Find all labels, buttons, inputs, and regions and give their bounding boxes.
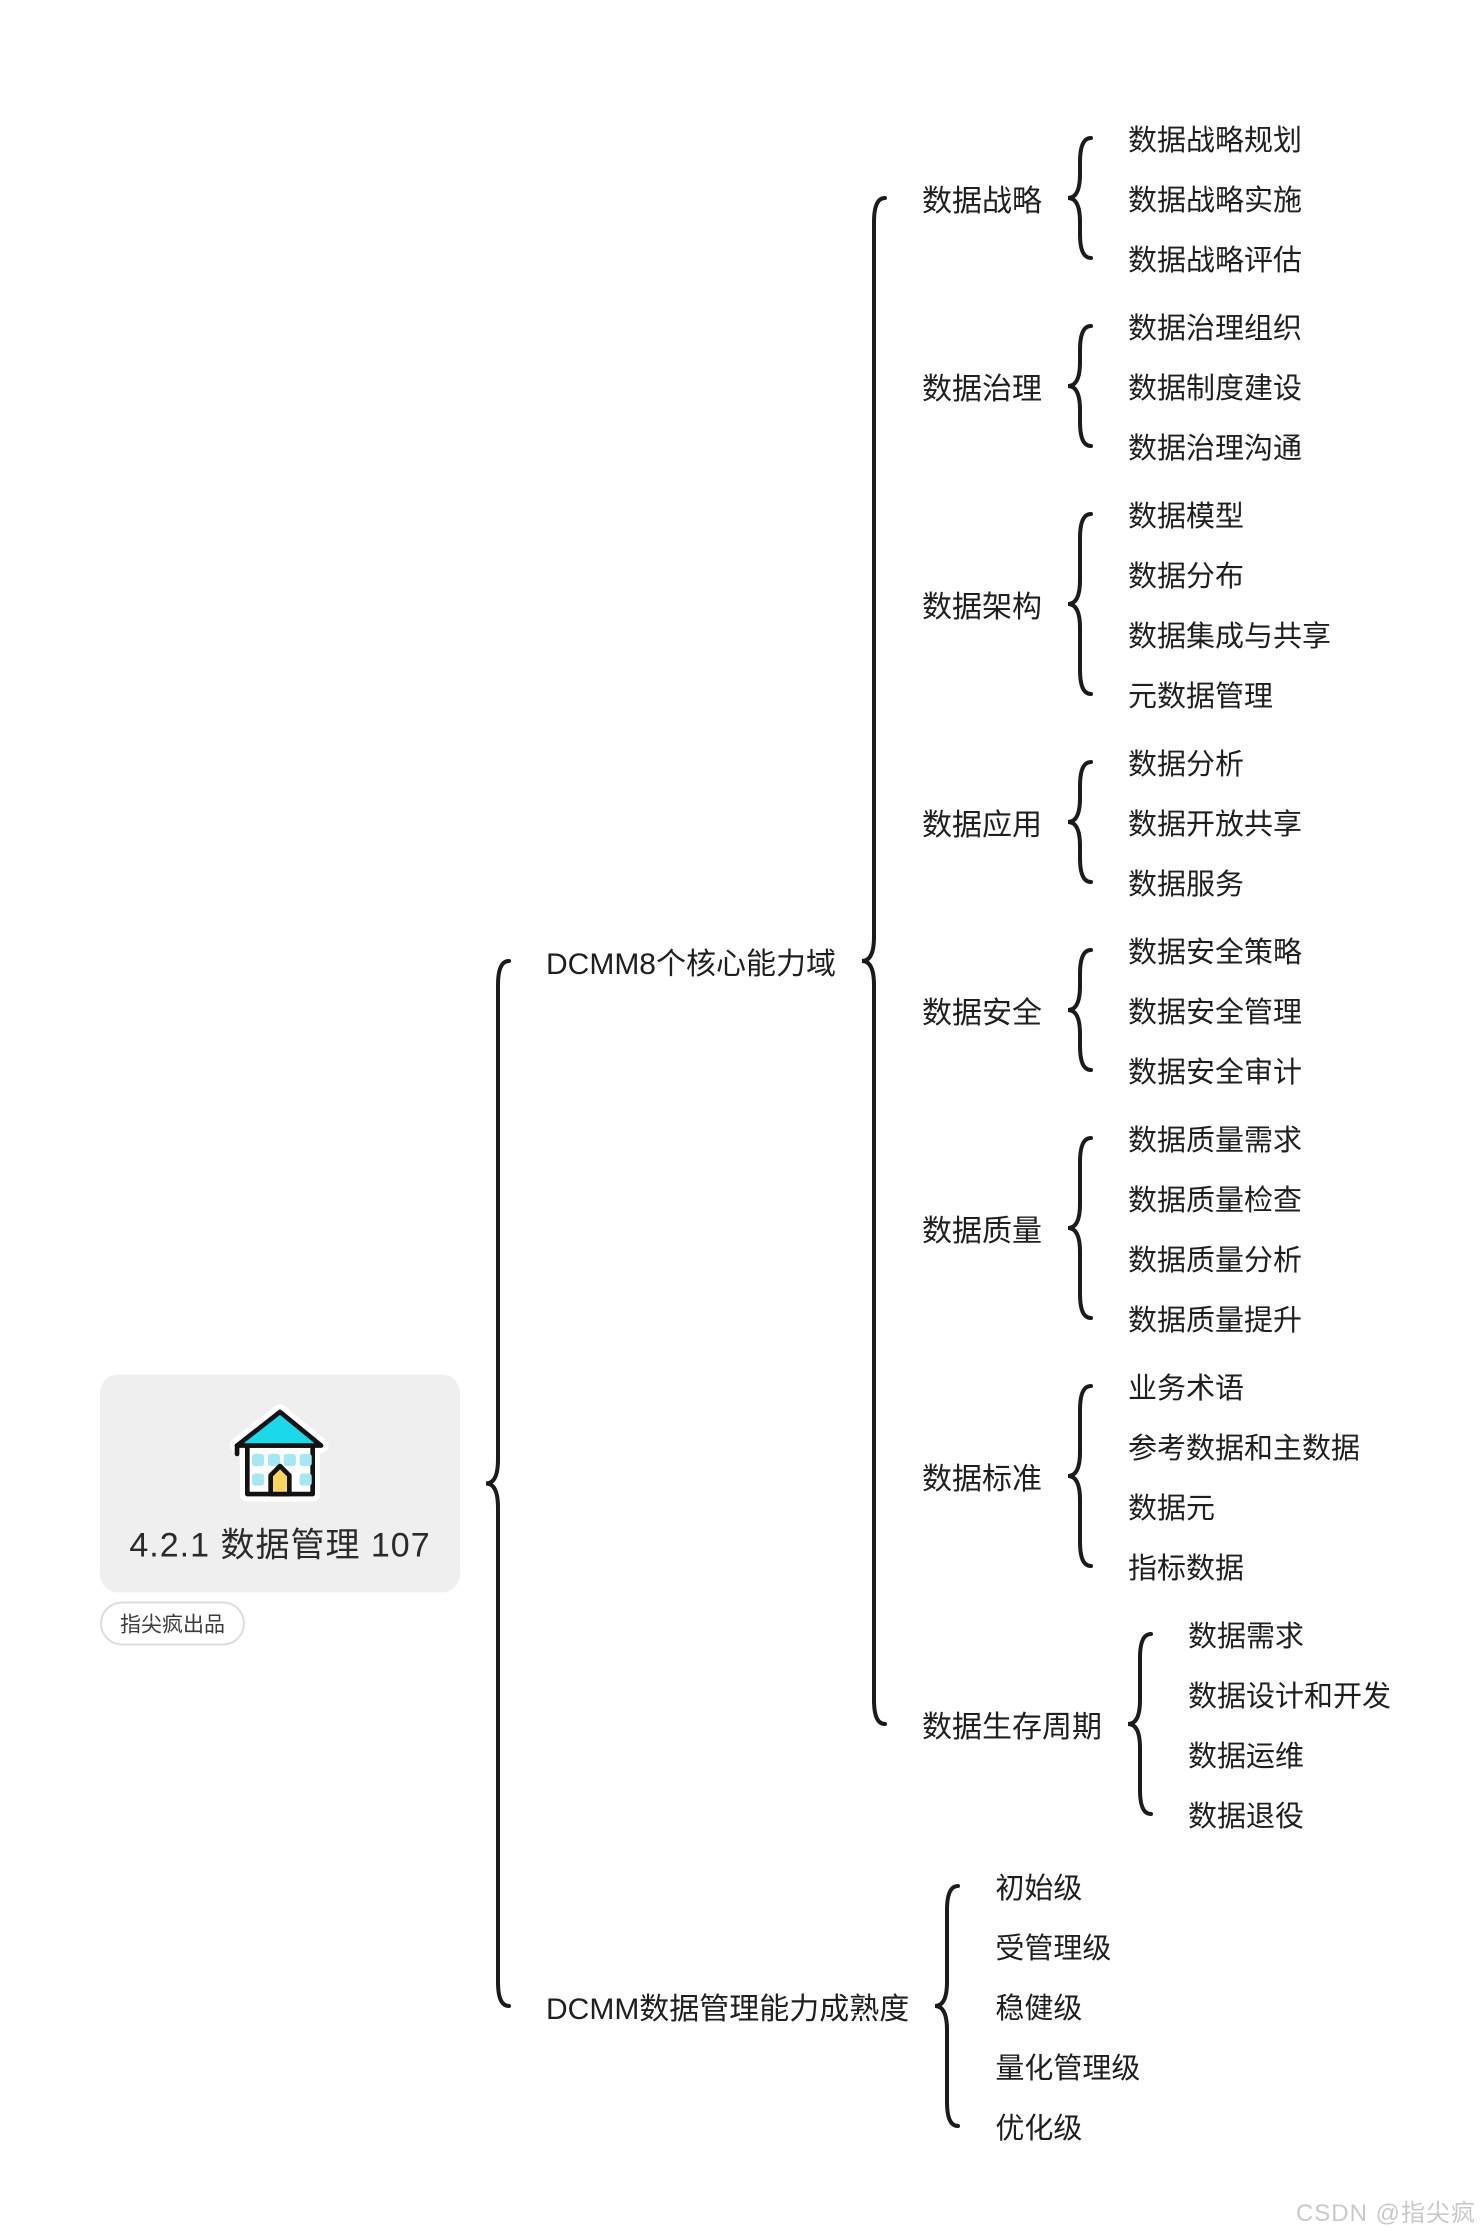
topic-label-wrap: DCMM数据管理能力成熟度 — [546, 1984, 909, 2028]
topic-label: 量化管理级 — [995, 2045, 1140, 2087]
topic-leaf: 数据服务 — [1128, 852, 1302, 912]
topic-leaf: 数据开放共享 — [1128, 792, 1302, 852]
brace-connector — [1126, 1604, 1152, 1844]
topic-children: 数据战略规划数据战略实施数据战略评估 — [1128, 108, 1302, 288]
topic-leaf: 数据需求 — [1188, 1604, 1391, 1664]
topic-children: 数据需求数据设计和开发数据运维数据退役 — [1188, 1604, 1391, 1844]
topic-label: 数据战略规划 — [1128, 117, 1302, 159]
topic-leaf: 业务术语 — [1128, 1356, 1360, 1416]
topic-label: 数据战略实施 — [1128, 177, 1302, 219]
topic-label: 数据运维 — [1188, 1733, 1304, 1775]
brace-connector — [1066, 1108, 1092, 1348]
brace-connector — [484, 100, 510, 2160]
topic-leaf: 初始级 — [995, 1856, 1140, 1916]
topic-label: 初始级 — [995, 1865, 1082, 1907]
topic-leaf: 数据战略实施 — [1128, 168, 1302, 228]
topic-branch: 数据生存周期数据需求数据设计和开发数据运维数据退役 — [922, 1604, 1391, 1844]
topic-label: 元数据管理 — [1128, 673, 1273, 715]
topic-label-wrap: 数据战略 — [922, 176, 1042, 220]
topic-label: DCMM数据管理能力成熟度 — [546, 1984, 909, 2028]
brace-connector — [1066, 1356, 1092, 1596]
house-window — [300, 1474, 312, 1486]
topic-branch: 数据治理数据治理组织数据制度建设数据治理沟通 — [922, 296, 1391, 476]
topic-leaf: 参考数据和主数据 — [1128, 1416, 1360, 1476]
topic-label: 数据质量 — [922, 1206, 1042, 1250]
topic-label: 数据开放共享 — [1128, 801, 1302, 843]
brace-connector — [1066, 296, 1092, 476]
topic-label: 业务术语 — [1128, 1365, 1244, 1407]
topic-branch: 数据安全数据安全策略数据安全管理数据安全审计 — [922, 920, 1391, 1100]
topic-label: 受管理级 — [995, 1925, 1111, 1967]
topic-label: 数据安全审计 — [1128, 1049, 1302, 1091]
house-window — [268, 1454, 280, 1466]
topic-label-wrap: 数据治理 — [922, 364, 1042, 408]
topic-leaf: 数据安全管理 — [1128, 980, 1302, 1040]
topic-label: 数据质量需求 — [1128, 1117, 1302, 1159]
topic-branch: 数据应用数据分析数据开放共享数据服务 — [922, 732, 1391, 912]
topic-children: 初始级受管理级稳健级量化管理级优化级 — [995, 1856, 1140, 2156]
topic-leaf: 数据战略评估 — [1128, 228, 1302, 288]
brace-connector — [1066, 732, 1092, 912]
topic-label: 数据设计和开发 — [1188, 1673, 1391, 1715]
house-window — [300, 1454, 312, 1466]
topic-label: 数据制度建设 — [1128, 365, 1302, 407]
topic-leaf: 数据制度建设 — [1128, 356, 1302, 416]
topic-label: 参考数据和主数据 — [1128, 1425, 1360, 1467]
topic-label: 数据治理沟通 — [1128, 425, 1302, 467]
topic-branch: 数据战略数据战略规划数据战略实施数据战略评估 — [922, 108, 1391, 288]
topic-children: 数据模型数据分布数据集成与共享元数据管理 — [1128, 484, 1331, 724]
csdn-watermark: CSDN @指尖疯 — [1296, 2193, 1476, 2228]
topic-label: 数据质量检查 — [1128, 1177, 1302, 1219]
topic-leaf: 数据战略规划 — [1128, 108, 1302, 168]
topic-children: 业务术语参考数据和主数据数据元指标数据 — [1128, 1356, 1360, 1596]
branch-list: DCMM8个核心能力域数据战略数据战略规划数据战略实施数据战略评估数据治理数据治… — [546, 100, 1391, 2160]
topic-label: 数据安全策略 — [1128, 929, 1302, 971]
topic-leaf: 数据治理沟通 — [1128, 416, 1302, 476]
topic-label: 数据模型 — [1128, 493, 1244, 535]
topic-label: 数据安全 — [922, 988, 1042, 1032]
topic-leaf: 元数据管理 — [1128, 664, 1331, 724]
topic-leaf: 受管理级 — [995, 1916, 1140, 1976]
topic-leaf: 数据元 — [1128, 1476, 1360, 1536]
topic-label: 数据需求 — [1188, 1613, 1304, 1655]
topic-label: DCMM8个核心能力域 — [546, 939, 836, 983]
topic-label-wrap: 数据生存周期 — [922, 1702, 1102, 1746]
topic-leaf: 数据质量需求 — [1128, 1108, 1302, 1168]
root-topic-wrap: 4.2.1 数据管理 107 指尖疯出品 — [100, 1375, 460, 1646]
topic-label: 数据架构 — [922, 582, 1042, 626]
topic-leaf: 数据质量分析 — [1128, 1228, 1302, 1288]
topic-label: 指标数据 — [1128, 1545, 1244, 1587]
house-window — [252, 1454, 264, 1466]
brace-connector — [1066, 484, 1092, 724]
topic-label-wrap: 数据应用 — [922, 800, 1042, 844]
topic-leaf: 数据质量提升 — [1128, 1288, 1302, 1348]
topic-branch: DCMM数据管理能力成熟度初始级受管理级稳健级量化管理级优化级 — [546, 1856, 1391, 2156]
topic-branch: 数据架构数据模型数据分布数据集成与共享元数据管理 — [922, 484, 1391, 724]
mindmap-canvas: 4.2.1 数据管理 107 指尖疯出品 DCMM8个核心能力域数据战略数据战略… — [0, 0, 1480, 2236]
topic-label: 数据标准 — [922, 1454, 1042, 1498]
topic-children: 数据战略数据战略规划数据战略实施数据战略评估数据治理数据治理组织数据制度建设数据… — [922, 104, 1391, 1848]
topic-label: 数据战略 — [922, 176, 1042, 220]
topic-label: 数据服务 — [1128, 861, 1244, 903]
topic-leaf: 数据集成与共享 — [1128, 604, 1331, 664]
topic-branch: DCMM8个核心能力域数据战略数据战略规划数据战略实施数据战略评估数据治理数据治… — [546, 104, 1391, 1848]
topic-leaf: 数据运维 — [1188, 1724, 1391, 1784]
topic-leaf: 数据分布 — [1128, 544, 1331, 604]
topic-label-wrap: 数据安全 — [922, 988, 1042, 1032]
topic-label: 数据治理组织 — [1128, 305, 1302, 347]
topic-branch: 数据标准业务术语参考数据和主数据数据元指标数据 — [922, 1356, 1391, 1596]
topic-label: 数据生存周期 — [922, 1702, 1102, 1746]
topic-children: 数据质量需求数据质量检查数据质量分析数据质量提升 — [1128, 1108, 1302, 1348]
topic-label: 数据质量提升 — [1128, 1297, 1302, 1339]
topic-label-wrap: 数据标准 — [922, 1454, 1042, 1498]
topic-label: 优化级 — [995, 2105, 1082, 2147]
brace-connector — [933, 1856, 959, 2156]
topic-leaf: 数据治理组织 — [1128, 296, 1302, 356]
topic-children: 数据分析数据开放共享数据服务 — [1128, 732, 1302, 912]
topic-label: 稳健级 — [995, 1985, 1082, 2027]
topic-label: 数据安全管理 — [1128, 989, 1302, 1031]
brace-connector — [1066, 920, 1092, 1100]
mindmap-tree: 4.2.1 数据管理 107 指尖疯出品 DCMM8个核心能力域数据战略数据战略… — [100, 96, 1391, 2164]
topic-leaf: 稳健级 — [995, 1976, 1140, 2036]
topic-label: 数据应用 — [922, 800, 1042, 844]
topic-label-wrap: 数据质量 — [922, 1206, 1042, 1250]
root-topic-card: 4.2.1 数据管理 107 — [100, 1375, 460, 1593]
topic-leaf: 数据模型 — [1128, 484, 1331, 544]
house-window — [252, 1474, 264, 1486]
topic-children: 数据安全策略数据安全管理数据安全审计 — [1128, 920, 1302, 1100]
topic-leaf: 指标数据 — [1128, 1536, 1360, 1596]
topic-label: 数据集成与共享 — [1128, 613, 1331, 655]
topic-label: 数据退役 — [1188, 1793, 1304, 1835]
topic-leaf: 数据质量检查 — [1128, 1168, 1302, 1228]
topic-branch: 数据质量数据质量需求数据质量检查数据质量分析数据质量提升 — [922, 1108, 1391, 1348]
author-badge: 指尖疯出品 — [100, 1602, 245, 1646]
topic-label: 数据分布 — [1128, 553, 1244, 595]
school-building-icon — [224, 1401, 336, 1506]
topic-label-wrap: 数据架构 — [922, 582, 1042, 626]
topic-label: 数据治理 — [922, 364, 1042, 408]
topic-label-wrap: DCMM8个核心能力域 — [546, 939, 836, 983]
house-door — [271, 1466, 290, 1494]
topic-leaf: 优化级 — [995, 2096, 1140, 2156]
root-topic: 4.2.1 数据管理 107 指尖疯出品 DCMM8个核心能力域数据战略数据战略… — [100, 100, 1391, 2160]
topic-children: 数据治理组织数据制度建设数据治理沟通 — [1128, 296, 1302, 476]
brace-connector — [1066, 108, 1092, 288]
topic-leaf: 量化管理级 — [995, 2036, 1140, 2096]
topic-label: 数据战略评估 — [1128, 237, 1302, 279]
brace-connector — [860, 104, 886, 1848]
topic-leaf: 数据分析 — [1128, 732, 1302, 792]
topic-label: 数据质量分析 — [1128, 1237, 1302, 1279]
house-window — [284, 1454, 296, 1466]
topic-leaf: 数据设计和开发 — [1188, 1664, 1391, 1724]
topic-label: 数据元 — [1128, 1485, 1215, 1527]
topic-leaf: 数据安全策略 — [1128, 920, 1302, 980]
topic-leaf: 数据退役 — [1188, 1784, 1391, 1844]
root-topic-title: 4.2.1 数据管理 107 — [129, 1518, 430, 1567]
topic-label: 数据分析 — [1128, 741, 1244, 783]
topic-leaf: 数据安全审计 — [1128, 1040, 1302, 1100]
